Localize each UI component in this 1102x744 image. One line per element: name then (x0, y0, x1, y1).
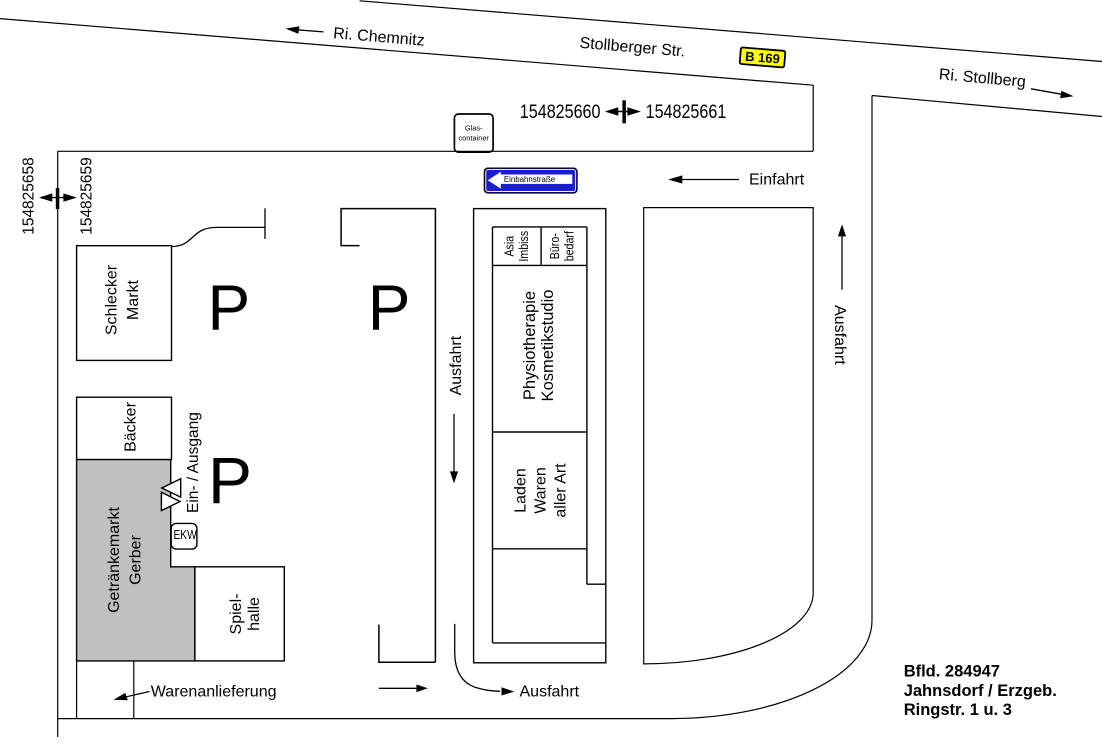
svg-text:Ausfahrt: Ausfahrt (831, 305, 848, 365)
svg-text:B 169: B 169 (745, 49, 781, 67)
svg-text:EKW: EKW (174, 529, 197, 542)
svg-text:Getränkemarkt: Getränkemarkt (106, 507, 123, 613)
svg-text:Bäcker: Bäcker (123, 401, 140, 451)
svg-text:Laden: Laden (512, 468, 529, 513)
svg-text:Einfahrt: Einfahrt (749, 171, 805, 188)
svg-text:Ein- / Ausgang: Ein- / Ausgang (185, 412, 202, 513)
svg-text:154825659: 154825659 (79, 157, 96, 235)
svg-text:Büro-: Büro- (547, 233, 562, 259)
svg-text:Spiel-: Spiel- (228, 594, 245, 635)
svg-text:Waren: Waren (532, 467, 549, 514)
svg-text:Gerber: Gerber (128, 534, 145, 584)
svg-text:Schlecker: Schlecker (103, 264, 120, 335)
svg-text:P: P (208, 443, 252, 517)
svg-text:P: P (368, 271, 411, 343)
svg-text:halle: halle (246, 597, 263, 631)
svg-text:Ausfahrt: Ausfahrt (448, 335, 465, 395)
svg-text:154825658: 154825658 (21, 157, 38, 235)
svg-text:aller Art: aller Art (552, 463, 569, 518)
svg-text:Asia: Asia (501, 235, 516, 256)
svg-text:P: P (208, 271, 251, 343)
svg-text:Ausfahrt: Ausfahrt (520, 683, 580, 700)
svg-text:154825660: 154825660 (520, 101, 601, 123)
svg-text:Bfld. 284947: Bfld. 284947 (904, 663, 1000, 681)
svg-text:bedarf: bedarf (562, 230, 577, 261)
svg-text:Ringstr. 1 u. 3: Ringstr. 1 u. 3 (904, 701, 1012, 719)
svg-text:Imbiss: Imbiss (516, 231, 531, 262)
svg-text:Kosmetikstudio: Kosmetikstudio (539, 290, 557, 402)
svg-text:Glas-: Glas- (465, 123, 483, 132)
svg-text:Physiotherapie: Physiotherapie (521, 291, 539, 400)
svg-text:Einbahnstraße: Einbahnstraße (504, 175, 556, 184)
svg-text:container: container (458, 133, 489, 142)
svg-text:Warenanlieferung: Warenanlieferung (151, 684, 277, 701)
svg-text:Markt: Markt (125, 279, 142, 320)
svg-text:Jahnsdorf / Erzgeb.: Jahnsdorf / Erzgeb. (904, 682, 1057, 700)
svg-text:154825661: 154825661 (646, 101, 727, 123)
